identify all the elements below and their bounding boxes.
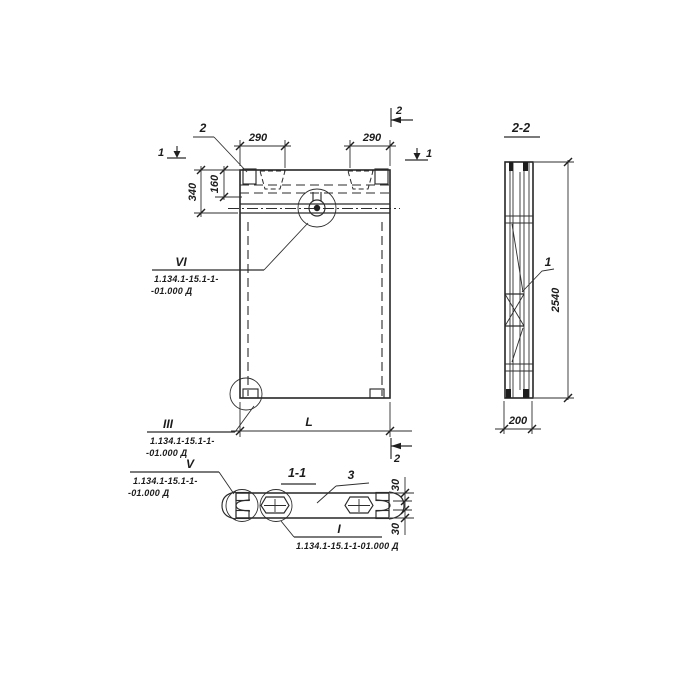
callout-vi-leader bbox=[264, 223, 308, 270]
dim-160: 160 bbox=[209, 174, 221, 193]
section-arrow-1-left bbox=[174, 151, 181, 158]
callout-i-line1: 1.134.1-15.1-1-01.000 Д bbox=[296, 541, 399, 551]
side-embed-bottom-right bbox=[523, 389, 529, 398]
dim-30-top: 30 bbox=[390, 478, 402, 491]
dim-340: 340 bbox=[187, 182, 199, 201]
callout-i: I 1.134.1-15.1-1-01.000 Д bbox=[281, 521, 399, 551]
callout-v-numeral: V bbox=[186, 457, 195, 471]
callout-i-numeral: I bbox=[337, 522, 341, 536]
leader-1-label: 1 bbox=[545, 255, 552, 269]
dim-200: 200 bbox=[508, 415, 528, 427]
side-embed-bottom-left bbox=[506, 389, 511, 398]
side-view-title: 2-2 bbox=[511, 121, 530, 135]
callout-vi: VI 1.134.1-15.1-1- -01.000 Д bbox=[151, 223, 308, 296]
callout-i-leader bbox=[281, 521, 294, 537]
hidden-recess-left bbox=[260, 171, 285, 189]
dim-290-right: 290 bbox=[362, 132, 382, 144]
embed-plate-top-left bbox=[243, 169, 256, 184]
callout-v-line1: 1.134.1-15.1-1- bbox=[133, 476, 198, 486]
section-right-recess bbox=[376, 500, 390, 511]
hidden-recess-right bbox=[348, 171, 373, 189]
embed-plate-top-right bbox=[375, 169, 388, 184]
marker-1-right: 1 bbox=[426, 148, 432, 160]
dim-290-left: 290 bbox=[248, 132, 268, 144]
detail-circle-left-end bbox=[226, 490, 258, 522]
callout-v-leader bbox=[219, 472, 234, 494]
callout-iii-numeral: III bbox=[163, 417, 174, 431]
callout-iii: III 1.134.1-15.1-1- -01.000 Д bbox=[146, 406, 254, 458]
embed-plate-bottom-left bbox=[243, 389, 258, 398]
section-arrow-1-right bbox=[414, 153, 421, 160]
callout-vi-line1: 1.134.1-15.1-1- bbox=[154, 274, 219, 284]
section-arrow-2-bottom bbox=[391, 443, 401, 449]
callout-iii-line1: 1.134.1-15.1-1- bbox=[150, 436, 215, 446]
marker-2-top: 2 bbox=[395, 105, 402, 117]
detail-circle-bottom-left bbox=[230, 378, 262, 410]
dim-2540: 2540 bbox=[550, 287, 562, 313]
callout-iii-line2: -01.000 Д bbox=[146, 448, 188, 458]
marker-2-bottom: 2 bbox=[393, 453, 400, 465]
front-view: 290 290 340 160 L 1 1 bbox=[158, 105, 432, 465]
marker-1-left: 1 bbox=[158, 147, 164, 159]
callout-v: V 1.134.1-15.1-1- -01.000 Д bbox=[128, 457, 234, 498]
leader-2-label: 2 bbox=[199, 121, 207, 135]
callout-vi-numeral: VI bbox=[175, 255, 187, 269]
leader-3-line bbox=[317, 486, 336, 503]
section-view: 1-1 3 30 bbox=[222, 466, 414, 535]
side-view: 2-2 2540 200 1 bbox=[495, 121, 574, 434]
section-left-recess bbox=[236, 500, 250, 511]
section-view-title: 1-1 bbox=[288, 466, 306, 480]
leader-3-label: 3 bbox=[348, 468, 355, 482]
technical-drawing-canvas: 290 290 340 160 L 1 1 bbox=[0, 0, 700, 700]
leader-2-line bbox=[214, 137, 247, 172]
callout-vi-line2: -01.000 Д bbox=[151, 286, 193, 296]
lifting-loop-core bbox=[314, 205, 320, 211]
side-embed-top-left bbox=[509, 162, 513, 171]
panel-drawing: 290 290 340 160 L 1 1 bbox=[0, 0, 700, 700]
section-arrow-2-top bbox=[391, 117, 401, 123]
callout-v-line2: -01.000 Д bbox=[128, 488, 170, 498]
dim-length: L bbox=[305, 415, 312, 429]
side-embed-top-right bbox=[523, 162, 528, 171]
dim-30-bottom: 30 bbox=[390, 522, 402, 535]
